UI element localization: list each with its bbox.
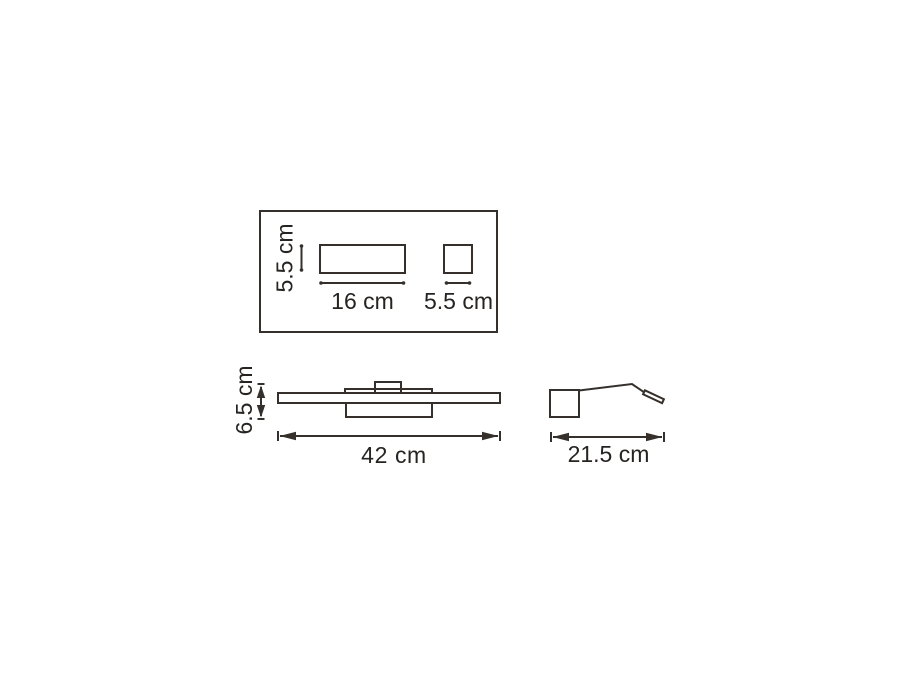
svg-text:6.5 cm: 6.5 cm [231, 365, 257, 434]
svg-text:42 cm: 42 cm [361, 442, 427, 468]
svg-text:16 cm: 16 cm [331, 288, 394, 314]
svg-text:5.5 cm: 5.5 cm [272, 223, 298, 292]
svg-text:5.5 cm: 5.5 cm [424, 288, 493, 314]
svg-text:21.5 cm: 21.5 cm [568, 441, 650, 467]
